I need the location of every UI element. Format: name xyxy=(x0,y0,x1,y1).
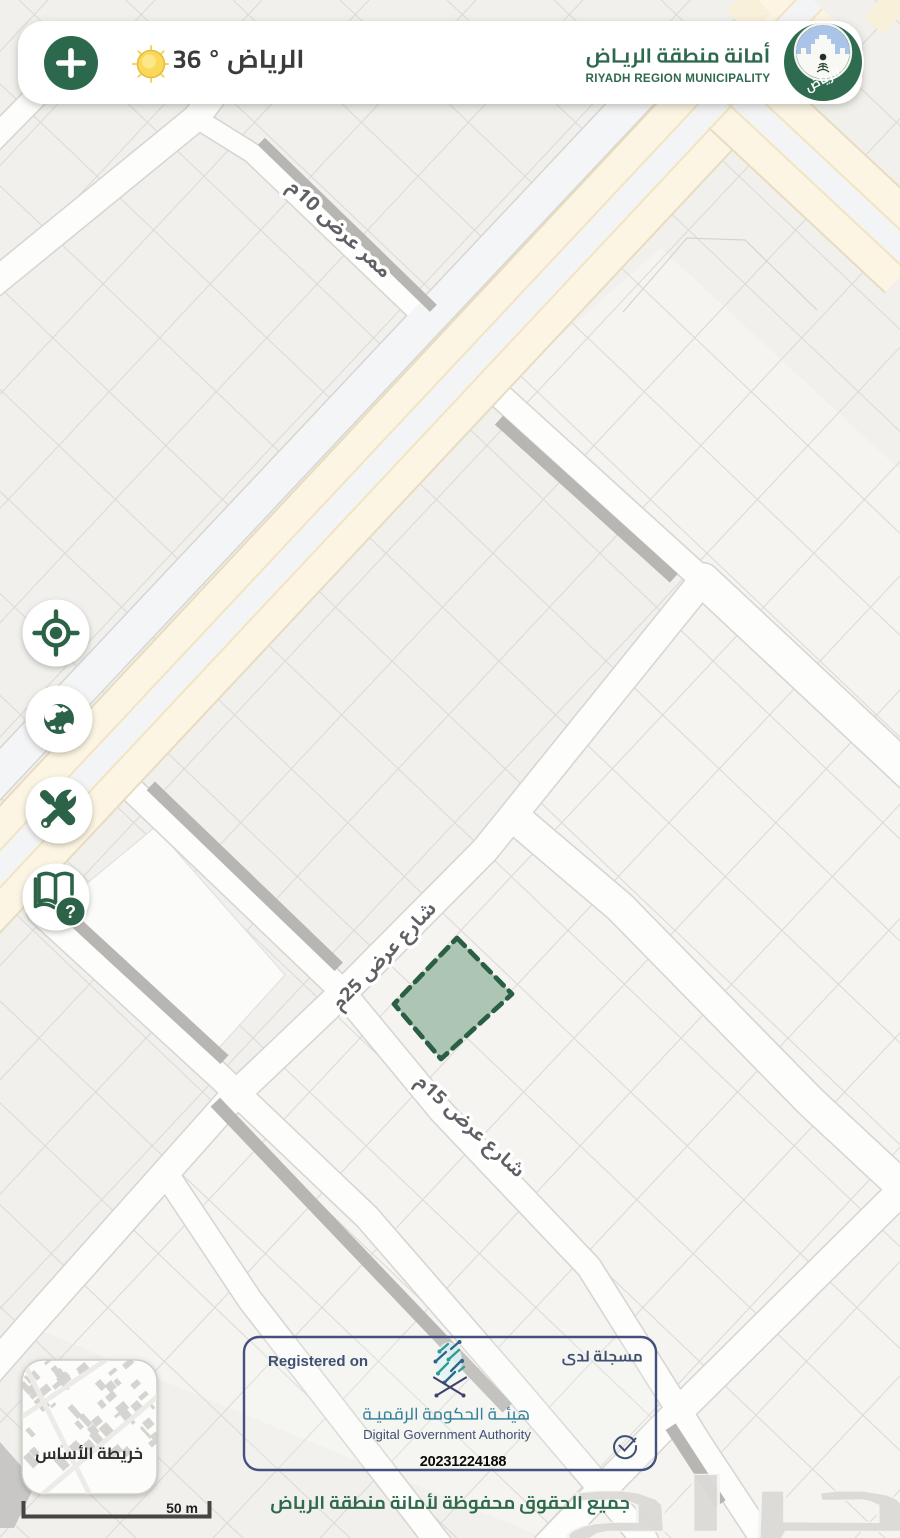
svg-text:20231224188: 20231224188 xyxy=(420,1454,507,1470)
svg-text:?: ? xyxy=(65,902,76,922)
svg-text:50 m: 50 m xyxy=(166,1500,198,1516)
svg-text:RIYADH REGION MUNICIPALITY: RIYADH REGION MUNICIPALITY xyxy=(586,72,771,85)
svg-text:Registered on: Registered on xyxy=(268,1353,368,1370)
svg-text:Digital Government Authority: Digital Government Authority xyxy=(363,1427,531,1442)
